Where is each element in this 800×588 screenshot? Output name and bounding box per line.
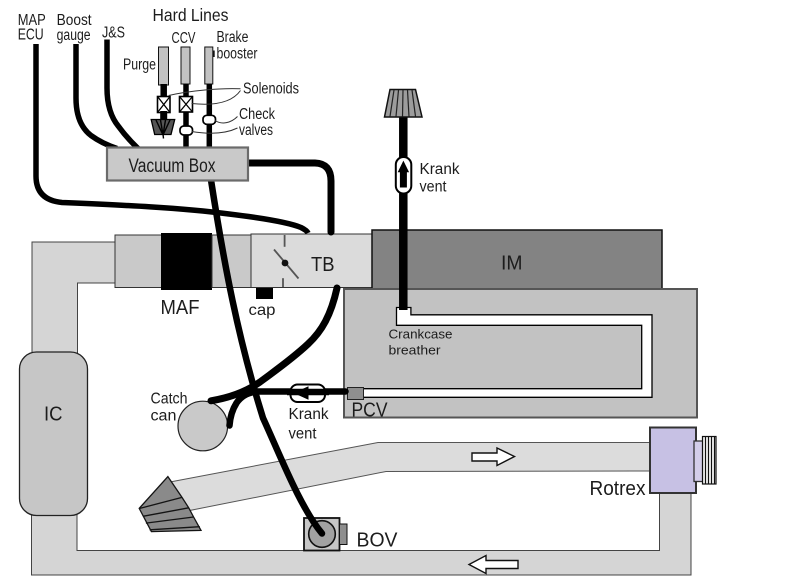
svg-text:BOV: BOV xyxy=(357,529,398,552)
svg-text:Check: Check xyxy=(239,106,275,123)
svg-text:Krank: Krank xyxy=(420,161,460,178)
svg-text:IM: IM xyxy=(501,252,523,275)
svg-text:Rotrex: Rotrex xyxy=(590,477,647,500)
svg-text:breather: breather xyxy=(389,343,442,358)
svg-text:PCV: PCV xyxy=(352,399,388,422)
svg-text:valves: valves xyxy=(239,122,273,139)
svg-text:vent: vent xyxy=(420,179,448,196)
svg-text:vent: vent xyxy=(289,426,318,443)
svg-text:Krank: Krank xyxy=(289,406,329,423)
svg-text:can: can xyxy=(151,408,177,425)
svg-text:booster: booster xyxy=(217,46,258,63)
svg-text:Solenoids: Solenoids xyxy=(243,81,299,98)
svg-text:Hard Lines: Hard Lines xyxy=(153,5,229,25)
svg-text:Brake: Brake xyxy=(217,29,249,46)
svg-text:cap: cap xyxy=(249,302,276,319)
svg-text:J&S: J&S xyxy=(102,25,125,42)
svg-text:gauge: gauge xyxy=(57,27,91,44)
svg-text:MAF: MAF xyxy=(161,296,200,319)
svg-text:IC: IC xyxy=(44,403,63,426)
svg-text:TB: TB xyxy=(311,253,335,276)
svg-text:Vacuum Box: Vacuum Box xyxy=(129,156,216,177)
svg-text:ECU: ECU xyxy=(18,27,44,44)
svg-text:CCV: CCV xyxy=(172,30,196,47)
svg-text:Crankcase: Crankcase xyxy=(389,327,453,342)
svg-text:Purge: Purge xyxy=(123,57,156,74)
svg-text:Catch: Catch xyxy=(151,391,188,408)
